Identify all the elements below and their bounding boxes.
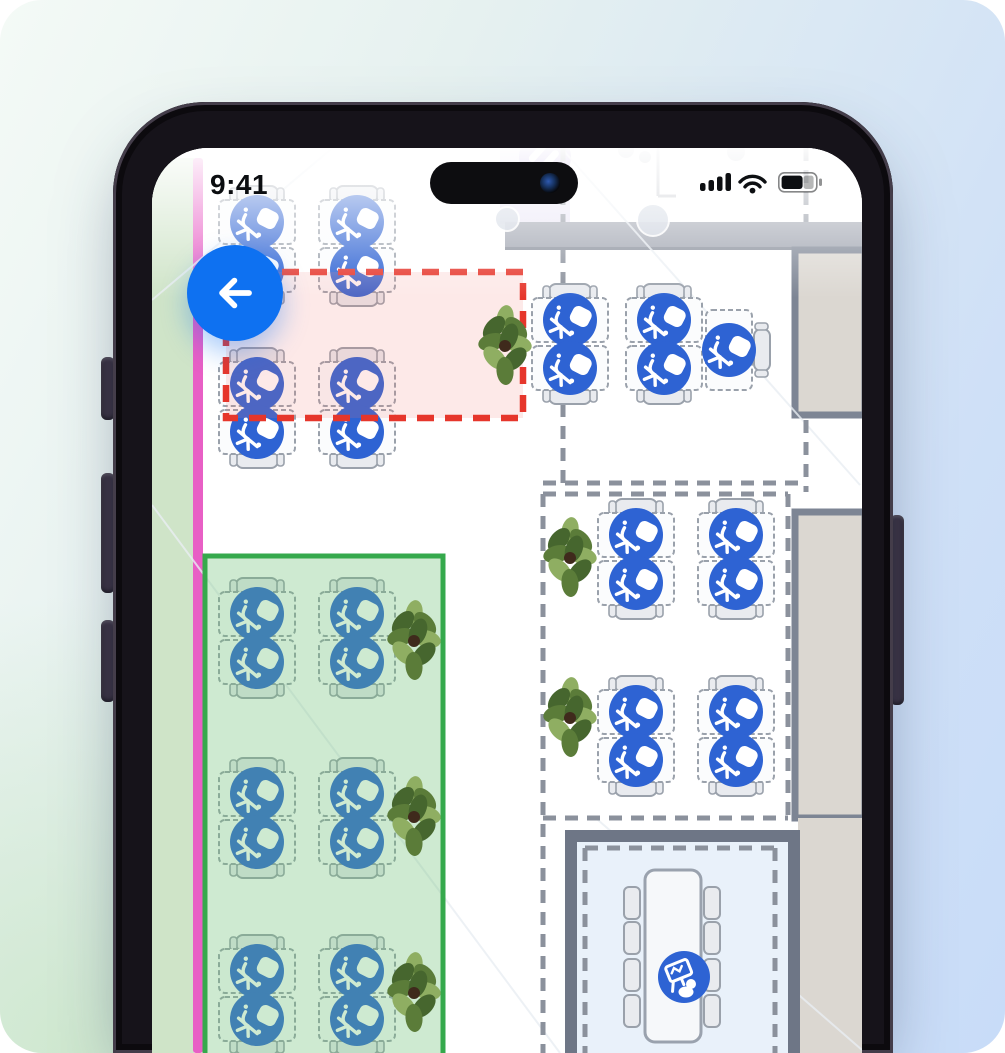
battery-icon	[779, 173, 822, 192]
desk-marker[interactable]	[609, 508, 663, 562]
desk-marker[interactable]	[637, 341, 691, 395]
desk-marker[interactable]	[709, 685, 763, 739]
meeting-room-wall	[565, 830, 577, 1053]
meeting-room-wall	[565, 830, 800, 842]
meeting-chair	[704, 887, 720, 919]
desk-marker[interactable]	[702, 323, 756, 377]
desk-marker[interactable]	[709, 733, 763, 787]
beige-area	[798, 818, 862, 1053]
camera-lens	[540, 173, 560, 193]
page-background: 9:41	[0, 0, 1005, 1053]
meeting-chair	[704, 922, 720, 954]
desk-marker[interactable]	[709, 508, 763, 562]
desk-marker[interactable]	[637, 293, 691, 347]
desk-marker[interactable]	[543, 293, 597, 347]
desk-marker[interactable]	[609, 556, 663, 610]
arrow-left-icon	[209, 267, 261, 319]
status-time: 9:41	[210, 169, 268, 201]
cellular-signal-icon	[700, 173, 731, 191]
chair	[754, 323, 770, 377]
phone-screen: 9:41	[152, 148, 862, 1053]
meeting-chair	[624, 922, 640, 954]
walled-room	[795, 512, 862, 818]
meeting-chair	[624, 959, 640, 991]
desk-marker[interactable]	[609, 733, 663, 787]
desk-marker[interactable]	[709, 556, 763, 610]
status-icons	[700, 170, 832, 196]
desk-marker[interactable]	[543, 341, 597, 395]
wifi-icon	[740, 176, 765, 193]
meeting-chair	[624, 995, 640, 1027]
meeting-room-wall	[788, 830, 800, 1053]
desk-marker[interactable]	[609, 685, 663, 739]
meeting-chair	[624, 887, 640, 919]
meeting-chair	[704, 995, 720, 1027]
dynamic-island	[430, 162, 578, 204]
meeting-room-marker[interactable]	[658, 951, 710, 1003]
phone-frame: 9:41	[113, 102, 893, 1053]
back-button[interactable]	[187, 245, 283, 341]
